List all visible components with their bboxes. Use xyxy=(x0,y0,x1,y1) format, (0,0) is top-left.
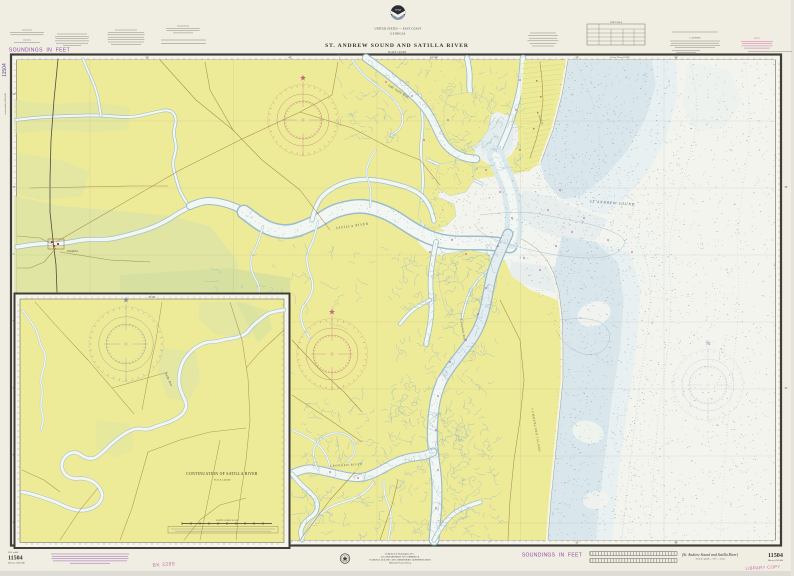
svg-text:NOTE: NOTE xyxy=(754,38,760,40)
svg-text:NAUTICAL MILE SCALE: NAUTICAL MILE SCALE xyxy=(216,519,239,522)
svg-text:UNITED STATES — EAST COAST: UNITED STATES — EAST COAST xyxy=(374,28,421,31)
svg-text:30': 30' xyxy=(674,56,678,60)
svg-text:(St. Andrew Sound and Satilla: (St. Andrew Sound and Satilla River) xyxy=(682,553,739,557)
svg-text:CONTINUATION OF SATILLA RIVER: CONTINUATION OF SATILLA RIVER xyxy=(186,472,258,476)
svg-text:Mercury (365) 446: Mercury (365) 446 xyxy=(767,559,783,562)
svg-text:Jacksonville (365) 446: Jacksonville (365) 446 xyxy=(5,92,7,115)
svg-text:35': 35' xyxy=(575,541,579,545)
svg-text:30': 30' xyxy=(674,541,678,545)
svg-text:35': 35' xyxy=(575,56,579,60)
svg-text:CAUTION: CAUTION xyxy=(690,37,701,40)
svg-text:Mercury (365) 446: Mercury (365) 446 xyxy=(7,562,25,565)
svg-text:NOAA: NOAA xyxy=(395,8,402,11)
svg-text:SOUNDINGS IN FEET: SOUNDINGS IN FEET xyxy=(9,48,70,54)
svg-text:58': 58' xyxy=(784,186,788,189)
svg-text:SCALE 1:40,000: SCALE 1:40,000 xyxy=(214,479,231,482)
svg-text:Woodbine: Woodbine xyxy=(67,250,79,253)
svg-text:W.O. p-446: W.O. p-446 xyxy=(8,552,19,554)
svg-text:TIDE TABLE: TIDE TABLE xyxy=(610,21,623,24)
svg-text:11504: 11504 xyxy=(768,552,783,559)
svg-text:58': 58' xyxy=(13,186,17,189)
svg-text:31°: 31° xyxy=(12,93,16,96)
svg-text:50': 50' xyxy=(145,56,149,60)
svg-text:(Joins Chart 11507): (Joins Chart 11507) xyxy=(610,56,629,59)
svg-text:81°40': 81°40' xyxy=(430,56,438,60)
svg-text:GEORGIA: GEORGIA xyxy=(390,33,405,36)
svg-text:National Ocean Survey: National Ocean Survey xyxy=(389,562,412,565)
svg-text:U.S. DEPARTMENT OF COMMERCE: U.S. DEPARTMENT OF COMMERCE xyxy=(381,556,420,559)
svg-text:45': 45' xyxy=(288,56,292,60)
svg-text:11504: 11504 xyxy=(8,556,23,562)
svg-text:SOUNDINGS IN FEET: SOUNDINGS IN FEET xyxy=(522,553,582,559)
svg-text:81°40': 81°40' xyxy=(149,296,156,299)
svg-text:52': 52' xyxy=(784,387,788,390)
svg-text:ST. ANDREW SOUND AND SATILLA R: ST. ANDREW SOUND AND SATILLA RIVER xyxy=(325,43,469,49)
svg-text:SCALE 1:40,000 — 1977 — 11504: SCALE 1:40,000 — 1977 — 11504 xyxy=(696,558,725,561)
svg-text:11504: 11504 xyxy=(2,63,8,77)
